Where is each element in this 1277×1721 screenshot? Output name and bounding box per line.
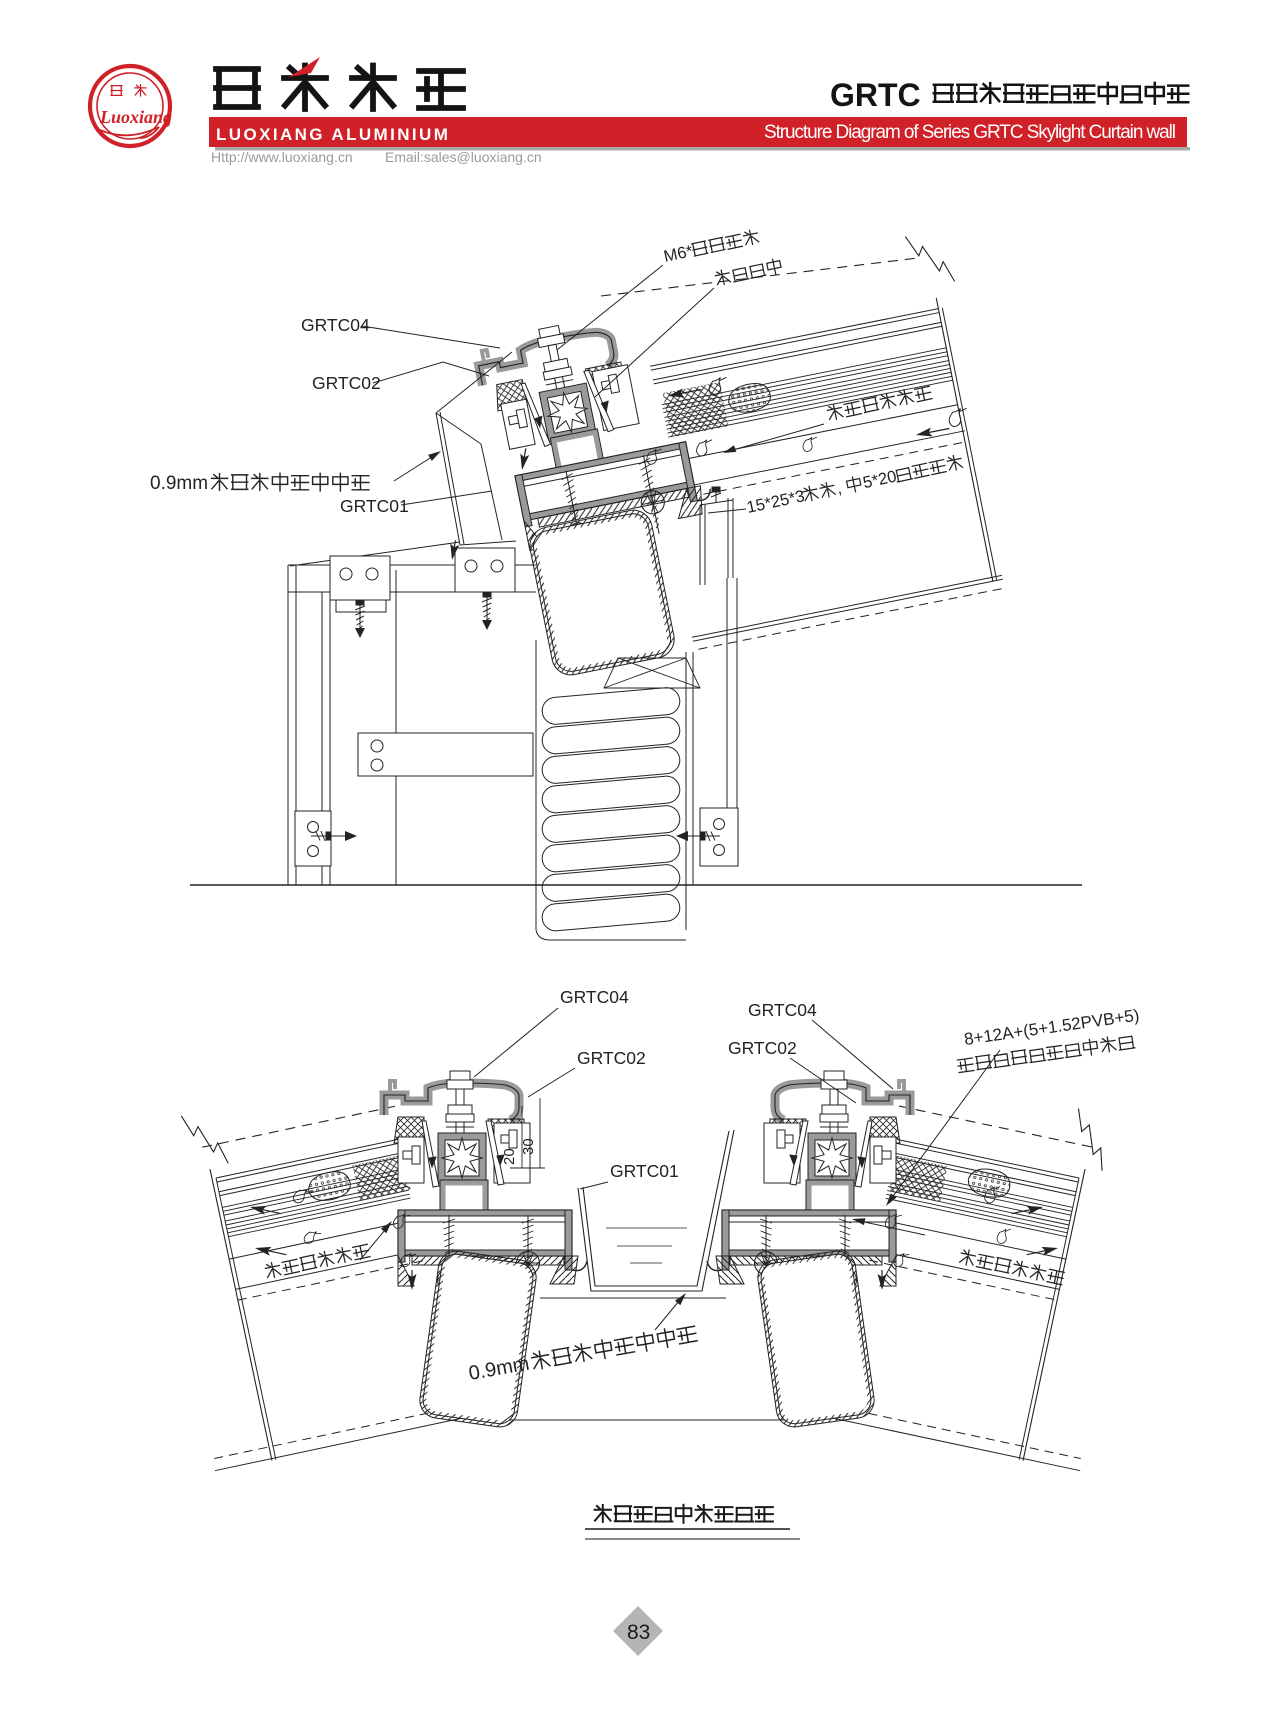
svg-text:Structure Diagram of Series GR: Structure Diagram of Series GRTC Skyligh…	[764, 122, 1176, 143]
svg-text:8+12A+(5+1.52PVB+5): 8+12A+(5+1.52PVB+5)	[963, 1006, 1141, 1049]
svg-text:GRTC02: GRTC02	[577, 1048, 646, 1068]
svg-text:GRTC: GRTC	[830, 77, 921, 113]
svg-text:30: 30	[520, 1138, 537, 1155]
svg-text:Http://www.luoxiang.cn: Http://www.luoxiang.cn	[211, 149, 353, 165]
svg-text:GRTC04: GRTC04	[560, 987, 629, 1007]
svg-text:GRTC01: GRTC01	[610, 1161, 679, 1181]
svg-text:20: 20	[501, 1148, 518, 1165]
svg-text:M6*: M6*	[662, 242, 695, 266]
svg-text:GRTC04: GRTC04	[301, 315, 370, 335]
svg-text:15*25*3: 15*25*3	[745, 487, 806, 517]
svg-text:Email:sales@luoxiang.cn: Email:sales@luoxiang.cn	[385, 149, 542, 165]
svg-text:GRTC02: GRTC02	[728, 1038, 797, 1058]
svg-text:0.9mm: 0.9mm	[150, 473, 208, 494]
svg-text:,: ,	[835, 479, 843, 498]
svg-text:Luoxiang: Luoxiang	[99, 107, 172, 127]
svg-text:GRTC04: GRTC04	[748, 1000, 817, 1020]
svg-text:GRTC02: GRTC02	[312, 373, 381, 393]
svg-text:83: 83	[627, 1621, 650, 1644]
svg-text:LUOXIANG ALUMINIUM: LUOXIANG ALUMINIUM	[216, 125, 450, 144]
svg-text:GRTC01: GRTC01	[340, 496, 409, 516]
svg-text:5*20: 5*20	[861, 468, 898, 493]
